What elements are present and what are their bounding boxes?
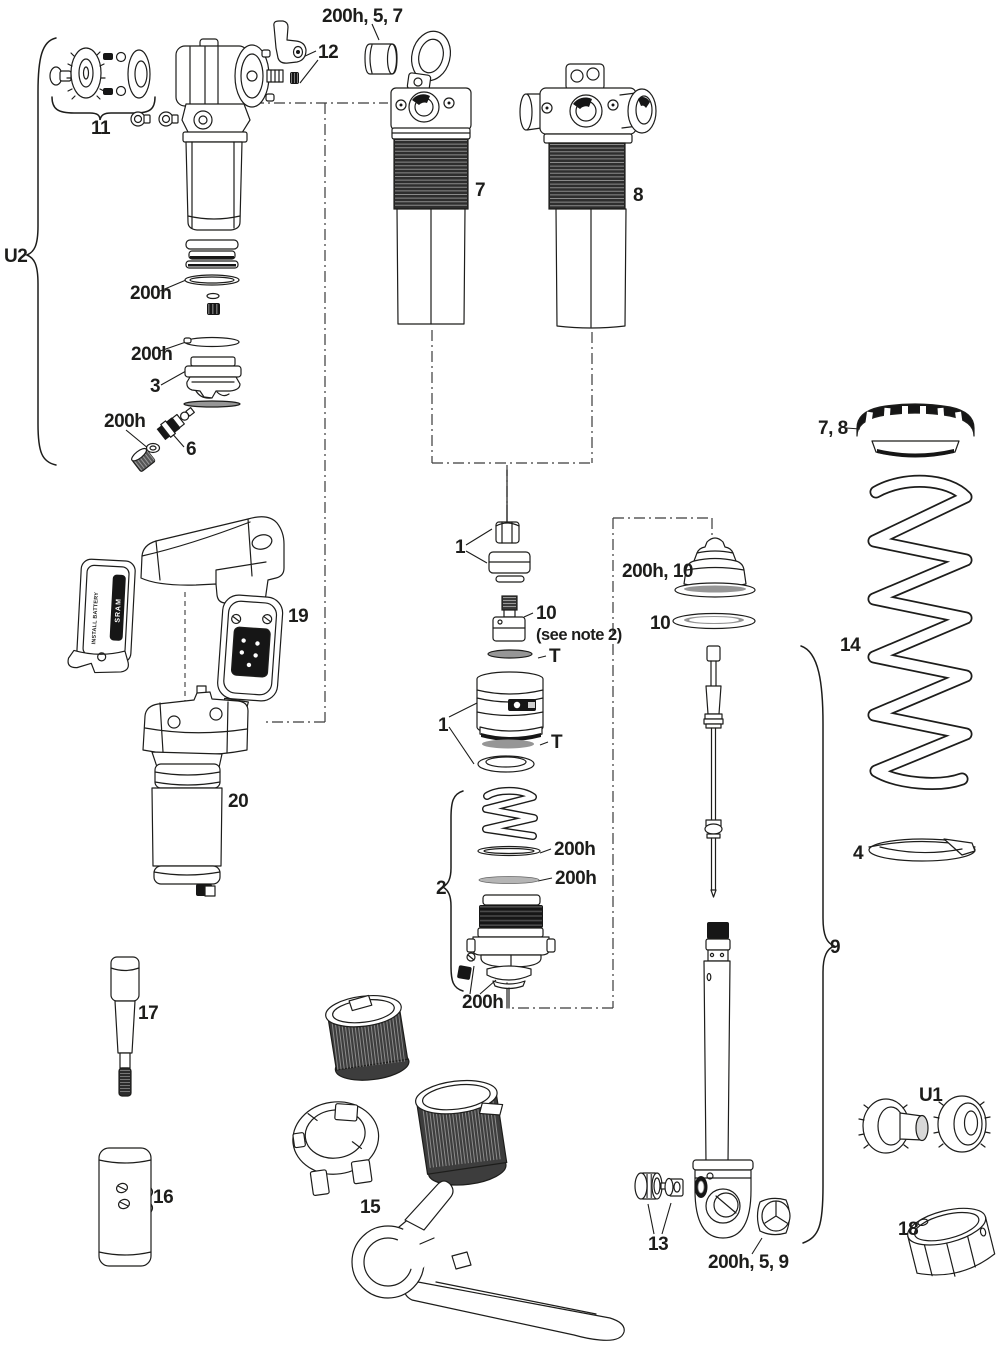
part-9-damper-body [693, 922, 753, 1238]
part-glide-ring [478, 756, 534, 772]
label-4: 4 [853, 843, 864, 864]
label-20: 20 [228, 791, 248, 812]
label-200h-b: 200h [131, 344, 172, 365]
part-10-ring [673, 614, 755, 629]
label-14: 14 [840, 635, 861, 656]
label-200h-5-9: 200h, 5, 9 [708, 1252, 789, 1273]
label-6: 6 [186, 439, 196, 460]
part-18-cup-tool [904, 1201, 998, 1284]
label-7: 7 [475, 180, 485, 201]
part-19-control-module [141, 517, 284, 714]
part-small-valve-bits [207, 294, 220, 316]
part-14-coil-spring [874, 481, 966, 783]
label-200h-10: 200h, 10 [622, 561, 693, 582]
label-200h-e: 200h [555, 868, 596, 889]
part-19-battery: INSTALL BATTERY SRAM [68, 558, 136, 674]
label-see-note: (see note 2) [536, 626, 622, 644]
part-200h-oring-c-disc [184, 401, 240, 407]
label-200h-a: 200h [130, 283, 171, 304]
brace-u2 [27, 38, 56, 465]
label-15: 15 [360, 1197, 381, 1218]
label-3: 3 [150, 376, 160, 397]
part-15-tool-set [288, 992, 624, 1341]
label-9: 9 [830, 937, 840, 958]
part-200h-oring-b [184, 338, 239, 347]
label-t-upper: T [549, 646, 561, 667]
part-17-socket-tool [111, 957, 139, 1096]
label-7-8: 7, 8 [818, 418, 848, 439]
part-4-spring-retainer [869, 839, 975, 861]
part-1-shaft-hardware [489, 522, 530, 582]
label-1-upper: 1 [455, 537, 466, 558]
label-200h-f: 200h [462, 992, 503, 1013]
parts-diagram-page: INSTALL BATTERY SRAM [0, 0, 1000, 1351]
label-2: 2 [436, 878, 446, 899]
part-200h-5-9-bushing [758, 1198, 791, 1234]
part-10-rebound-adjuster [493, 596, 525, 641]
parts-diagram: INSTALL BATTERY SRAM [0, 0, 1000, 1351]
label-top-bushing-group: 200h, 5, 7 [322, 6, 403, 27]
part-13-hardware [635, 1173, 683, 1199]
label-16: 16 [153, 1187, 173, 1208]
part-motor-assembly [176, 39, 283, 230]
label-17: 17 [138, 1003, 158, 1024]
part-2-ifp-group [457, 791, 555, 1008]
part-16-sleeve-tool [99, 1148, 153, 1266]
part-1-piston-assembly [477, 672, 543, 741]
battery-brand-text: SRAM [114, 598, 122, 623]
part-rebound-needle [704, 646, 723, 897]
label-u1: U1 [919, 1085, 943, 1106]
label-u2: U2 [4, 246, 27, 267]
label-t-lower: T [551, 732, 563, 753]
part-200h-5-7-bushing [365, 44, 397, 74]
part-3-air-valve [185, 357, 241, 398]
label-8: 8 [633, 185, 643, 206]
part-t-washer-lower [482, 740, 534, 749]
label-11: 11 [91, 118, 111, 139]
part-200h-oring-a [185, 275, 239, 285]
part-7-shock-body [391, 27, 471, 324]
label-10-b: 10 [650, 613, 670, 634]
part-seal-head-stack [186, 240, 238, 268]
part-11-hardware-group [50, 48, 178, 126]
label-13: 13 [648, 1234, 668, 1255]
part-t-washer-upper [488, 650, 532, 658]
label-200h-c: 200h [104, 411, 145, 432]
label-19: 19 [288, 606, 308, 627]
part-7-8-preload-collar [857, 404, 974, 458]
label-18: 18 [898, 1219, 918, 1240]
label-12: 12 [318, 42, 338, 63]
label-10-a: 10 [536, 603, 556, 624]
label-200h-d: 200h [554, 839, 595, 860]
label-1-lower: 1 [438, 715, 449, 736]
